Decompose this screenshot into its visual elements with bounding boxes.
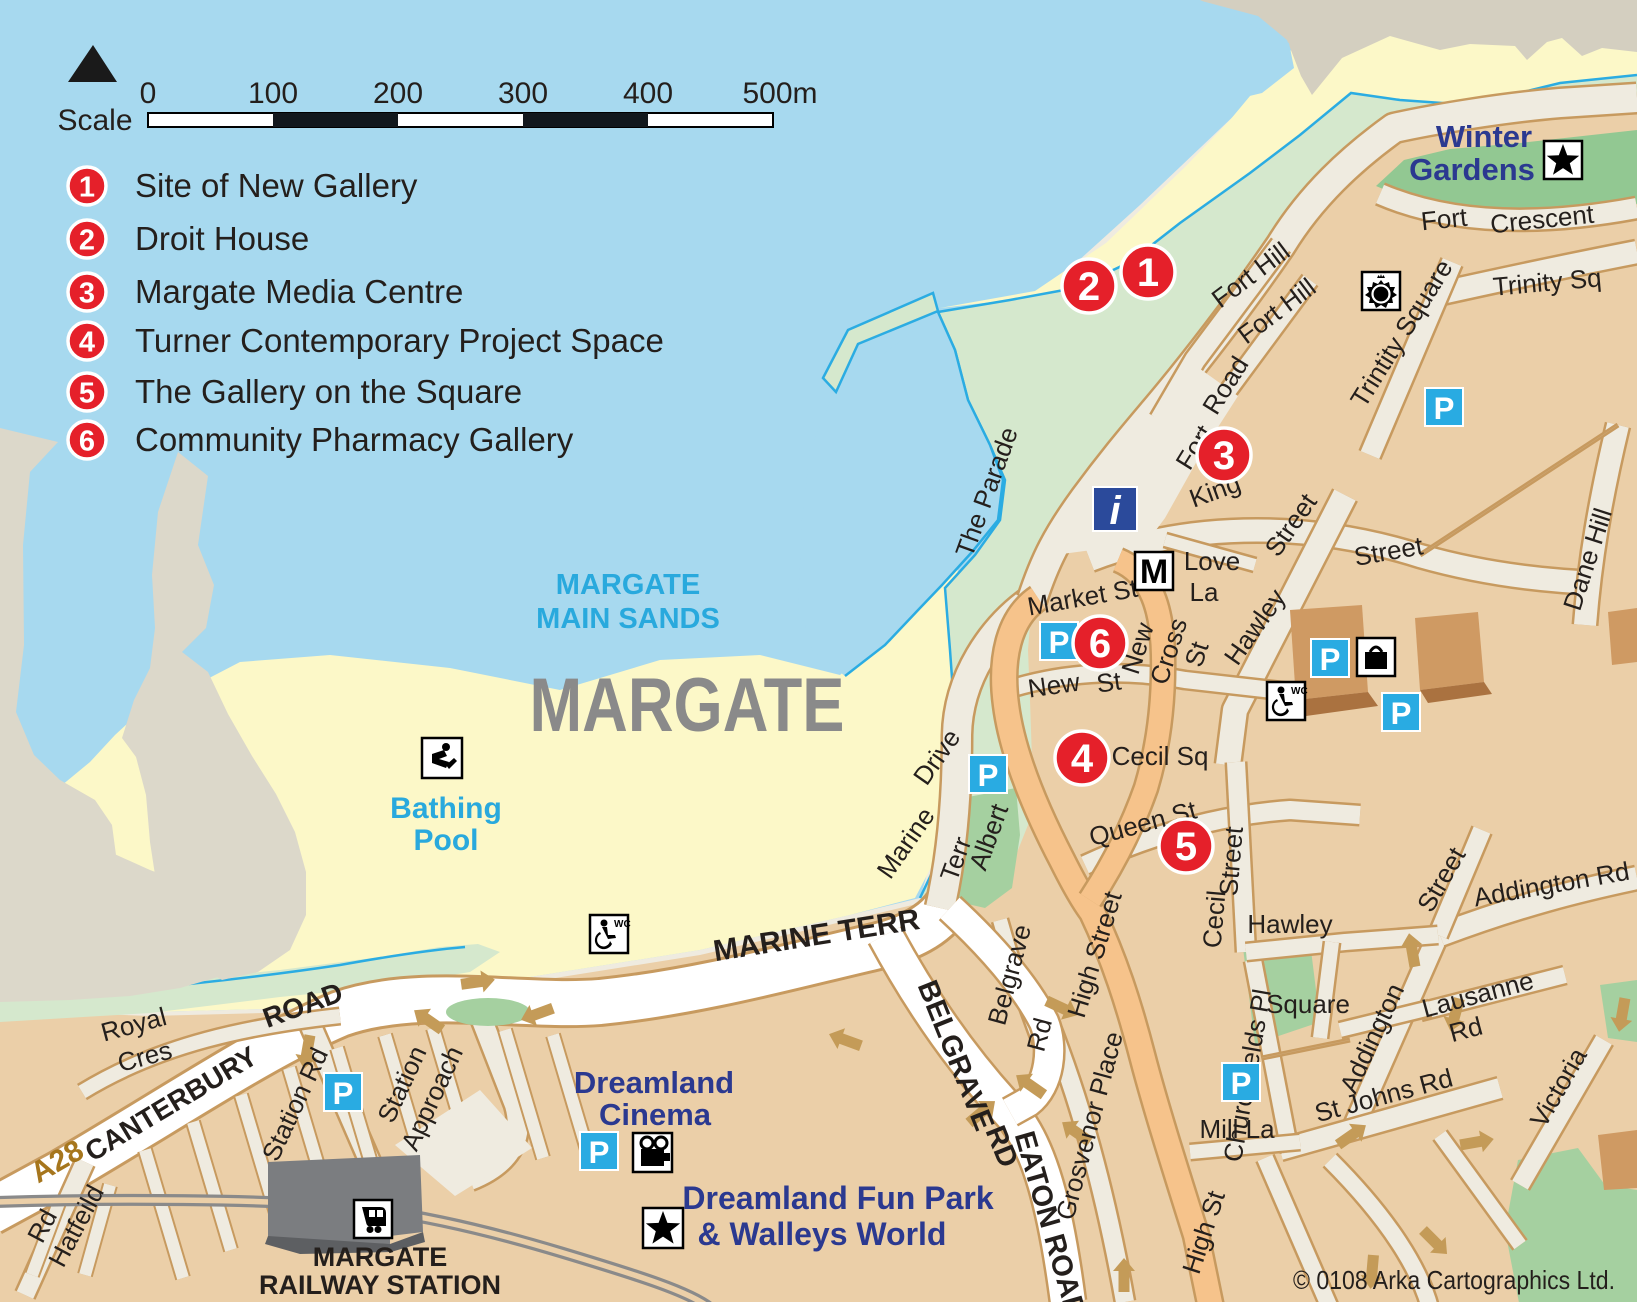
svg-text:La: La bbox=[1190, 577, 1219, 607]
svg-text:5: 5 bbox=[1175, 825, 1197, 869]
svg-text:Square: Square bbox=[1266, 989, 1350, 1019]
svg-text:P: P bbox=[978, 758, 999, 793]
svg-text:© 0108 Arka Cartographics Ltd.: © 0108 Arka Cartographics Ltd. bbox=[1293, 1265, 1615, 1295]
svg-text:P: P bbox=[1391, 696, 1412, 731]
svg-text:MAIN SANDS: MAIN SANDS bbox=[536, 603, 720, 635]
svg-text:MARGATE: MARGATE bbox=[556, 569, 700, 601]
svg-text:3: 3 bbox=[79, 277, 95, 309]
svg-text:Fort: Fort bbox=[1420, 202, 1470, 237]
svg-text:3: 3 bbox=[1213, 434, 1235, 478]
svg-text:M: M bbox=[1140, 553, 1168, 591]
svg-text:MARGATE: MARGATE bbox=[530, 663, 845, 748]
svg-text:Winter: Winter bbox=[1436, 119, 1532, 154]
svg-text:Cinema: Cinema bbox=[599, 1097, 712, 1132]
svg-text:Turner Contemporary Project Sp: Turner Contemporary Project Space bbox=[135, 322, 664, 359]
svg-text:Hawley: Hawley bbox=[1247, 909, 1332, 939]
svg-text:P: P bbox=[1434, 391, 1455, 426]
svg-text:Cecil: Cecil bbox=[1197, 889, 1232, 949]
svg-text:P: P bbox=[1231, 1066, 1252, 1101]
svg-text:i: i bbox=[1109, 489, 1121, 533]
svg-text:Pool: Pool bbox=[414, 824, 479, 857]
svg-text:0: 0 bbox=[140, 77, 157, 110]
svg-text:Dreamland Fun Park: Dreamland Fun Park bbox=[682, 1180, 993, 1216]
svg-text:Dreamland: Dreamland bbox=[574, 1065, 734, 1100]
svg-text:Love: Love bbox=[1184, 546, 1240, 576]
svg-text:6: 6 bbox=[1089, 622, 1111, 666]
svg-text:Bathing: Bathing bbox=[390, 792, 502, 825]
svg-text:Mill La: Mill La bbox=[1199, 1114, 1275, 1144]
svg-text:WC: WC bbox=[614, 919, 631, 930]
svg-text:Droit House: Droit House bbox=[135, 220, 309, 257]
svg-text:4: 4 bbox=[1071, 737, 1094, 781]
svg-text:2: 2 bbox=[79, 224, 95, 256]
svg-text:WC: WC bbox=[1291, 686, 1308, 697]
svg-text:2: 2 bbox=[1078, 265, 1100, 309]
svg-text:P: P bbox=[1320, 642, 1341, 677]
svg-text:Cecil Sq: Cecil Sq bbox=[1112, 741, 1209, 771]
svg-text:100: 100 bbox=[248, 77, 298, 110]
svg-text:200: 200 bbox=[373, 77, 423, 110]
svg-text:500m: 500m bbox=[742, 77, 817, 110]
svg-text:The Gallery on the Square: The Gallery on the Square bbox=[135, 373, 522, 410]
svg-text:Gardens: Gardens bbox=[1409, 152, 1535, 187]
svg-text:1: 1 bbox=[79, 171, 95, 203]
svg-text:Street: Street bbox=[1213, 825, 1249, 897]
svg-text:P: P bbox=[589, 1135, 610, 1170]
svg-text:Margate Media Centre: Margate Media Centre bbox=[135, 273, 463, 310]
svg-text:1: 1 bbox=[1137, 251, 1159, 295]
svg-text:4: 4 bbox=[79, 326, 95, 358]
svg-text:300: 300 bbox=[498, 77, 548, 110]
svg-text:5: 5 bbox=[79, 377, 95, 409]
svg-text:Site of New Gallery: Site of New Gallery bbox=[135, 167, 418, 204]
svg-text:400: 400 bbox=[623, 77, 673, 110]
svg-text:Community Pharmacy Gallery: Community Pharmacy Gallery bbox=[135, 421, 574, 458]
svg-text:6: 6 bbox=[79, 425, 95, 457]
svg-text:P: P bbox=[1049, 625, 1070, 660]
svg-text:MARGATE: MARGATE bbox=[313, 1242, 448, 1272]
svg-text:& Walleys World: & Walleys World bbox=[698, 1216, 947, 1252]
svg-text:P: P bbox=[333, 1076, 354, 1111]
svg-text:RAILWAY STATION: RAILWAY STATION bbox=[259, 1270, 501, 1300]
svg-text:Scale: Scale bbox=[57, 104, 132, 137]
